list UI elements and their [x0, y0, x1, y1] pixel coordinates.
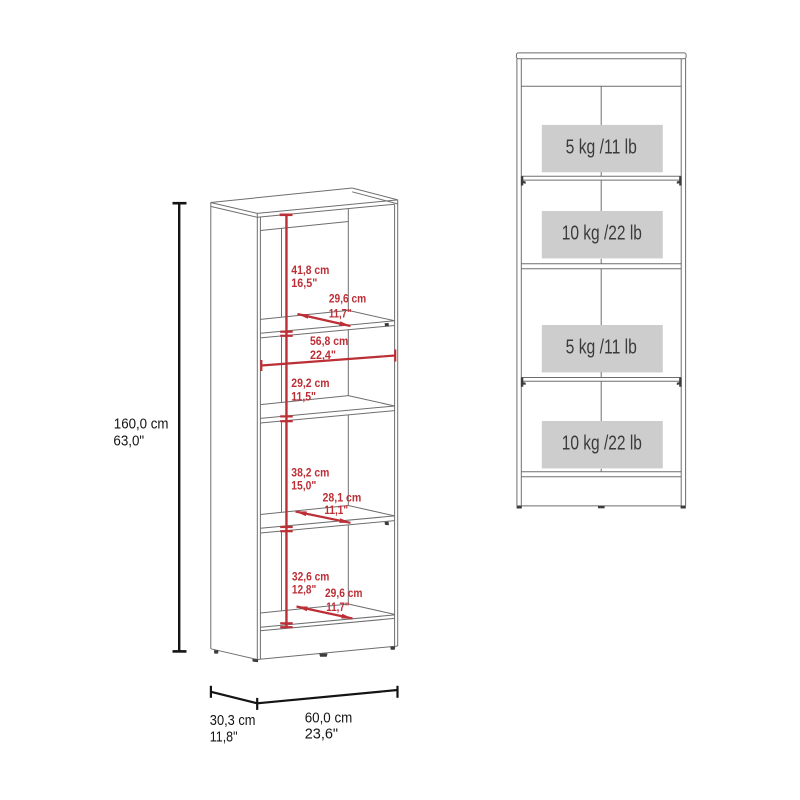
- svg-text:60,0 cm: 60,0 cm: [305, 710, 353, 726]
- svg-text:29,6 cm: 29,6 cm: [325, 586, 363, 600]
- svg-text:38,2 cm: 38,2 cm: [291, 465, 329, 479]
- svg-text:11,5": 11,5": [291, 390, 316, 404]
- svg-text:41,8 cm: 41,8 cm: [291, 263, 329, 277]
- svg-text:29,2 cm: 29,2 cm: [291, 376, 329, 390]
- svg-text:56,8 cm: 56,8 cm: [310, 334, 348, 348]
- svg-text:10 kg /22 lb: 10 kg /22 lb: [562, 431, 642, 454]
- svg-text:5 kg /11 lb: 5 kg /11 lb: [566, 336, 637, 359]
- svg-text:160,0 cm: 160,0 cm: [114, 416, 169, 432]
- svg-text:32,6 cm: 32,6 cm: [292, 570, 330, 584]
- svg-text:10 kg /22 lb: 10 kg /22 lb: [562, 222, 642, 245]
- svg-text:23,6": 23,6": [305, 727, 338, 743]
- svg-text:22,4": 22,4": [310, 348, 336, 362]
- svg-text:29,6 cm: 29,6 cm: [329, 292, 366, 306]
- svg-text:15,0": 15,0": [291, 479, 316, 493]
- svg-text:5 kg /11 lb: 5 kg /11 lb: [566, 135, 637, 158]
- svg-text:30,3 cm: 30,3 cm: [210, 713, 256, 729]
- svg-text:11,1": 11,1": [324, 503, 348, 517]
- svg-text:11,7": 11,7": [326, 600, 349, 614]
- svg-text:16,5": 16,5": [291, 276, 317, 290]
- svg-text:63,0": 63,0": [113, 433, 144, 449]
- svg-text:12,8": 12,8": [292, 583, 317, 597]
- svg-text:11,7": 11,7": [329, 307, 352, 321]
- svg-text:11,8": 11,8": [210, 729, 238, 745]
